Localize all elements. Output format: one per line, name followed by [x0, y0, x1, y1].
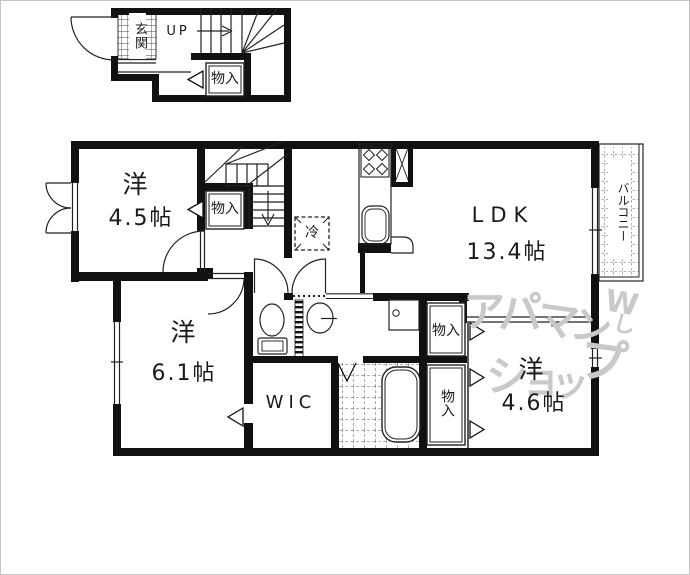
- floor-plan-image: ア パ マ ン W し シ ョ ッ プ: [0, 0, 690, 575]
- washbasin: [307, 303, 337, 333]
- kitchen-counter: [359, 144, 413, 253]
- entrance-tile: [118, 11, 191, 72]
- pocket-door-partition: [295, 300, 303, 357]
- bathroom: [339, 363, 420, 448]
- floorplan-drawing: [1, 1, 690, 575]
- balcony: [599, 144, 643, 281]
- toilet: [258, 304, 287, 354]
- walls: [71, 8, 599, 456]
- doors-and-windows: [46, 17, 602, 448]
- washer-pan: [389, 300, 419, 330]
- refrigerator-space: [295, 217, 329, 250]
